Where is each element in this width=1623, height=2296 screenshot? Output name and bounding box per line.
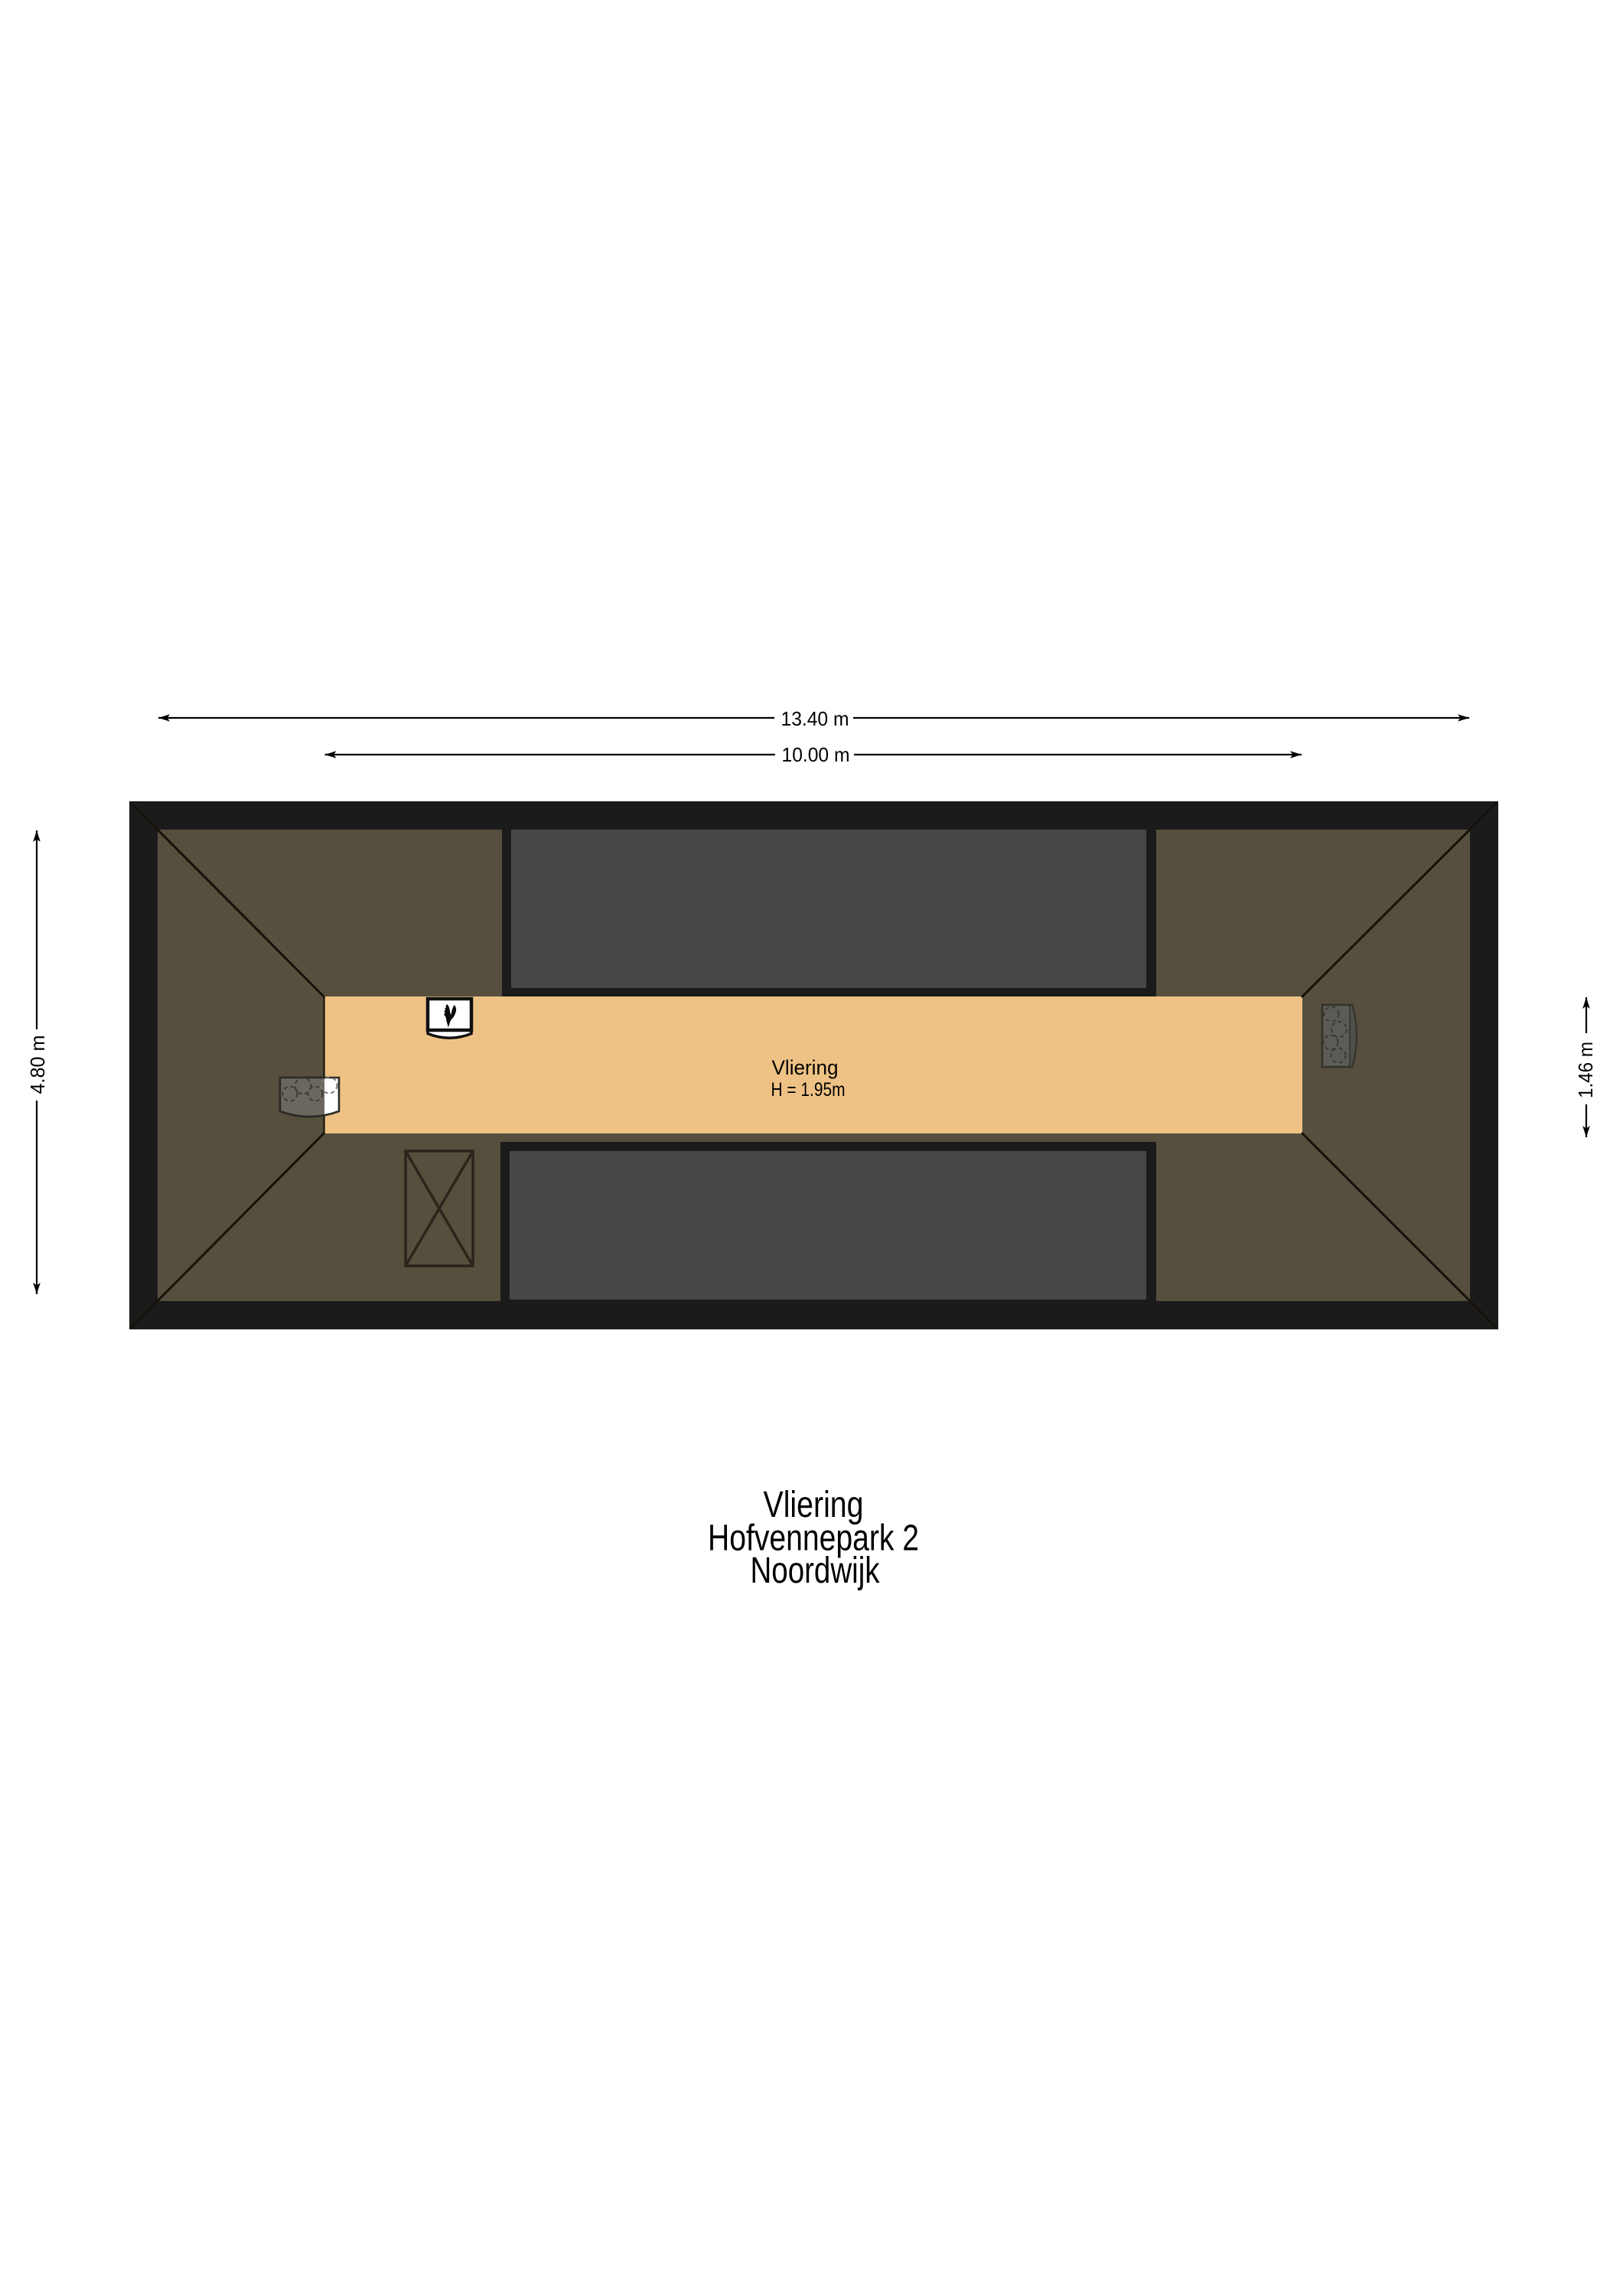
svg-text:H = 1.95m: H = 1.95m [771, 1079, 846, 1101]
svg-text:Vliering: Vliering [772, 1056, 839, 1079]
svg-text:10.00 m: 10.00 m [782, 743, 850, 766]
svg-text:1.46 m: 1.46 m [1574, 1042, 1597, 1098]
svg-text:4.80 m: 4.80 m [26, 1035, 49, 1094]
svg-text:13.40 m: 13.40 m [781, 707, 849, 730]
svg-text:Noordwijk: Noordwijk [751, 1551, 881, 1591]
